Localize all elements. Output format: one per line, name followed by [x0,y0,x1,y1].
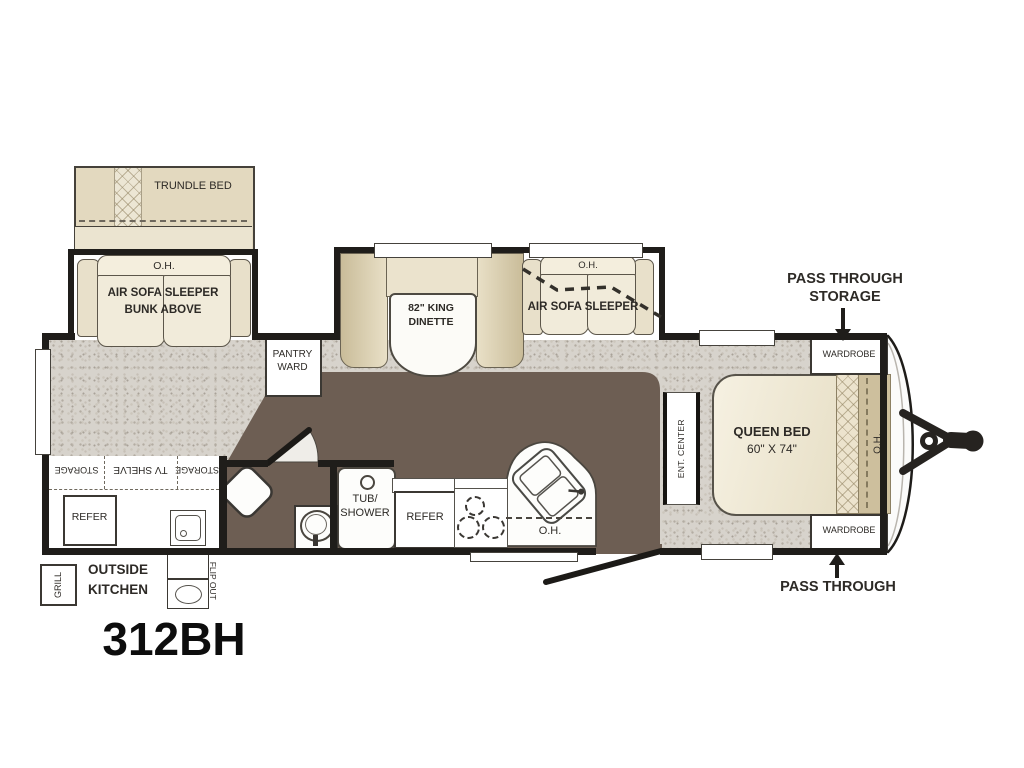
flip-out-label: FLIP OUT [207,562,217,600]
trundle-frame-band [75,226,252,251]
bunk-oh-label: O.H. [153,261,175,273]
pass-through-storage-label-1: PASS THROUGH [775,271,915,287]
dinette-label-1: 82" KING [391,303,471,315]
window-dinette-slide-2 [529,243,643,258]
outside-grill: GRILL [40,564,77,606]
tv-shelf-band: STORAGE TV SHELVE STORAGE [49,456,219,490]
pass-through-label: PASS THROUGH [768,579,908,595]
pass-through-arrow-stem [835,564,839,578]
shelf-divider-2 [177,456,178,489]
stove-burner-2 [457,516,480,539]
outside-kitchen-label-1: OUTSIDE [78,562,158,577]
dinette-label-2: DINETTE [391,317,471,329]
wall-bath-right-seg [318,460,394,467]
wall-bath-left-seg [220,460,268,467]
wardrobe-top-label: WARDROBE [810,349,888,359]
window-bedroom-top [699,330,775,346]
wall-top-mid [252,333,340,340]
stove-burner-1 [465,496,485,516]
trundle-blanket-strip [114,168,142,226]
tub-shower-label-1: TUB/ [333,493,397,505]
stove-burner-3 [482,516,505,539]
tv-room-sink [170,510,206,546]
kitchen-stove [454,488,508,548]
shelf-divider-1 [104,456,105,489]
queen-bed-label-2: 60" X 74" [712,443,832,456]
wall-right [880,333,887,555]
kitchen-oh-dash-line [506,517,592,519]
flipout-unit: FLIP OUT [204,553,220,609]
entertainment-center: ENT. CENTER [663,392,700,505]
hitch-coupler-knob [963,431,984,452]
trundle-bed-label: TRUNDLE BED [138,180,248,192]
kitchen-refer-label: REFER [394,511,456,523]
kitchen-oh-label: O.H. [528,525,572,537]
storage-label-left: STORAGE [49,465,104,475]
tub-shower-label-2: SHOWER [333,507,397,519]
window-dinette-slide-1 [374,243,492,258]
pass-through-storage-arrow-stem [841,308,845,330]
tv-sink-drain [180,530,187,537]
outside-kitchen-label-2: KITCHEN [78,582,158,597]
bunk-sofa-label-2: BUNK ABOVE [88,304,238,317]
dinette-bench-left [340,253,388,368]
grill-label: GRILL [53,572,63,598]
pantry-label-2: WARD [265,362,320,373]
pass-through-storage-label-2: STORAGE [775,289,915,305]
flipout-sink-oval [175,585,202,604]
entry-step [470,552,578,562]
model-title: 312BH [94,614,254,666]
wardrobe-bottom-label: WARDROBE [810,525,888,535]
wall-bottom-right [660,548,887,555]
window-left-wall [35,349,51,455]
vanity-basin-inner [305,514,327,535]
tv-shelve-label: TV SHELVE [104,464,177,475]
pantry-label-1: PANTRY [265,349,320,360]
wall-tv-room [219,456,227,555]
dinette-bench-top [386,253,478,297]
sofa-label: AIR SOFA SLEEPER [508,301,658,314]
shower-head [360,475,375,490]
trundle-bed: TRUNDLE BED [74,166,255,255]
vanity-faucet [313,535,318,546]
pass-through-storage-arrow-head [835,329,851,341]
floorplan-312bh: TRUNDLE BED O.H. AIR SOFA SLEEPER BUNK A… [0,0,1024,768]
storage-label-right: STORAGE [177,465,219,475]
queen-bed-label-1: QUEEN BED [712,425,832,440]
bunk-sofa-label-1: AIR SOFA SLEEPER [88,287,238,300]
trundle-dash-line [79,220,247,222]
hitch-jack-bolt [925,437,933,445]
tv-sink-basin [175,515,201,541]
window-bedroom-bottom [701,544,773,560]
sofa-oh-label: O.H. [578,261,598,272]
flipout-box-top [167,551,209,579]
tv-refer-label: REFER [63,512,116,524]
ent-center-label: ENT. CENTER [677,419,687,478]
sofa-armrest-right [633,259,654,335]
bed-pillow-band [836,374,860,514]
flipout-box-bottom [167,579,209,609]
